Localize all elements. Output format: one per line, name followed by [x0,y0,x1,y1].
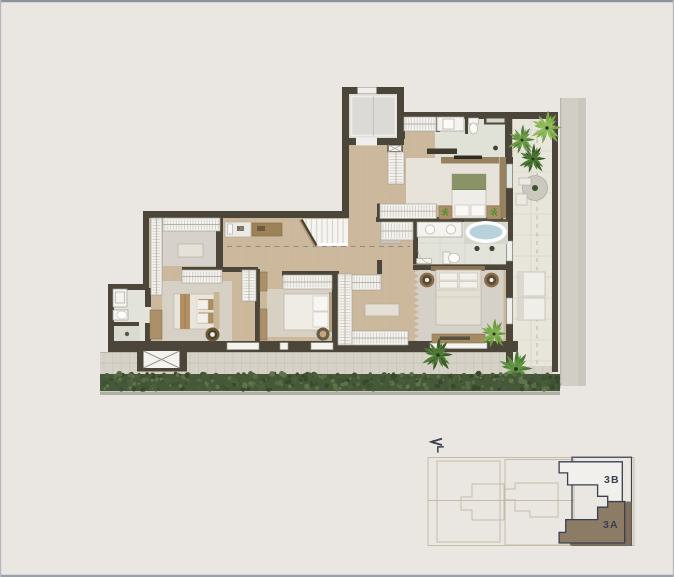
svg-text:3B: 3B [604,474,620,486]
svg-text:3A: 3A [603,519,619,531]
